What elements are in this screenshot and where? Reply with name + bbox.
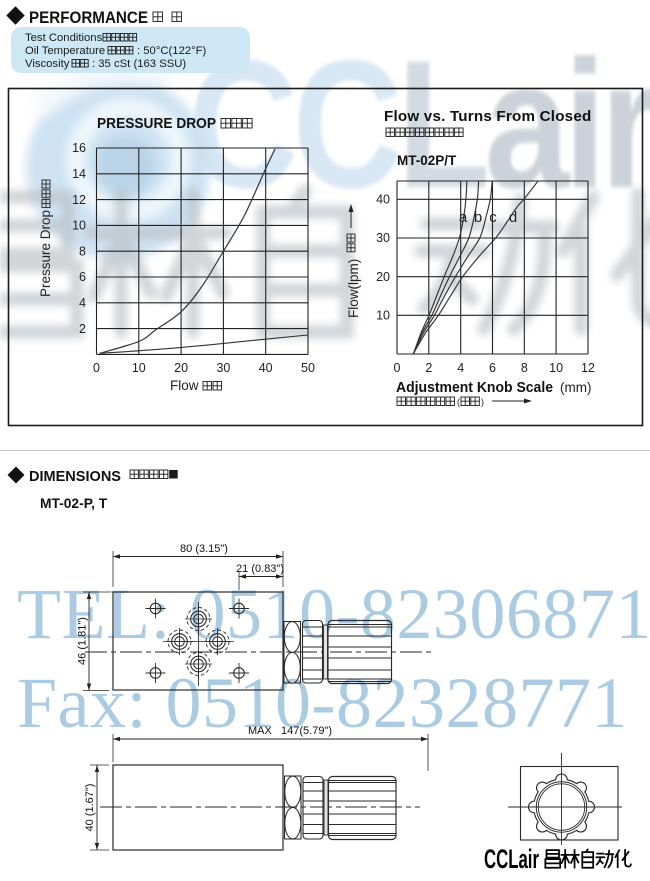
svg-text:6: 6 (79, 270, 86, 284)
svg-text:20: 20 (174, 361, 188, 375)
svg-text:4: 4 (457, 361, 464, 375)
svg-text:Adjustment Knob Scale: Adjustment Knob Scale (396, 379, 553, 396)
svg-text:12: 12 (72, 193, 86, 207)
svg-text:46 (1.81"): 46 (1.81") (77, 617, 89, 665)
svg-text:Flow(lpm): Flow(lpm) (346, 259, 361, 318)
svg-text:PRESSURE DROP: PRESSURE DROP (97, 116, 216, 132)
svg-text:PERFORMANCE: PERFORMANCE (29, 9, 148, 27)
svg-text:40 (1.67"): 40 (1.67") (84, 784, 96, 832)
svg-text:): ) (481, 397, 484, 407)
svg-text:6: 6 (489, 361, 496, 375)
svg-text:20: 20 (376, 270, 390, 284)
svg-text:10: 10 (72, 219, 86, 233)
svg-text:a: a (459, 209, 468, 226)
svg-text:(mm): (mm) (560, 380, 591, 395)
svg-text:10: 10 (132, 361, 146, 375)
svg-text:Pressure Drop: Pressure Drop (38, 210, 53, 297)
svg-text:CCLair: CCLair (484, 844, 539, 874)
svg-text:8: 8 (521, 361, 528, 375)
svg-text:14: 14 (72, 167, 86, 181)
svg-text:80 (3.15"): 80 (3.15") (180, 543, 228, 555)
svg-text:DIMENSIONS: DIMENSIONS (29, 468, 121, 485)
svg-text:Test Conditions: Test Conditions (25, 32, 103, 44)
svg-text:10: 10 (376, 309, 390, 323)
svg-text:40: 40 (259, 361, 273, 375)
svg-text:8: 8 (79, 244, 86, 258)
svg-text:12: 12 (581, 361, 595, 375)
svg-text:b: b (474, 209, 482, 226)
svg-text:2: 2 (425, 361, 432, 375)
svg-text:: 35 cSt (163 SSU): : 35 cSt (163 SSU) (92, 58, 186, 70)
svg-text:2: 2 (79, 322, 86, 336)
svg-text:30: 30 (216, 361, 230, 375)
svg-text:40: 40 (376, 193, 390, 207)
svg-text:Oil Temperature: Oil Temperature (25, 45, 105, 57)
svg-text:Flow vs. Turns From Closed: Flow vs. Turns From Closed (384, 108, 591, 125)
svg-text:c: c (489, 209, 497, 226)
svg-text:Flow: Flow (170, 378, 199, 393)
svg-text:21 (0.83"): 21 (0.83") (236, 563, 284, 575)
svg-text:30: 30 (376, 231, 390, 245)
svg-text:10: 10 (549, 361, 563, 375)
svg-text:MT-02-P, T: MT-02-P, T (40, 496, 108, 511)
svg-text:0: 0 (93, 361, 100, 375)
svg-text:MAX 147(5.79"): MAX 147(5.79") (248, 725, 332, 737)
svg-text:: 50°C(122°F): : 50°C(122°F) (137, 45, 207, 57)
svg-text:50: 50 (301, 361, 315, 375)
svg-text:MT-02P/T: MT-02P/T (397, 153, 457, 168)
svg-text:4: 4 (79, 296, 86, 310)
svg-text:Viscosity: Viscosity (25, 58, 70, 70)
svg-text:d: d (509, 209, 517, 226)
svg-text:0: 0 (394, 361, 401, 375)
svg-text:(: ( (457, 397, 460, 407)
svg-text:16: 16 (72, 141, 86, 155)
